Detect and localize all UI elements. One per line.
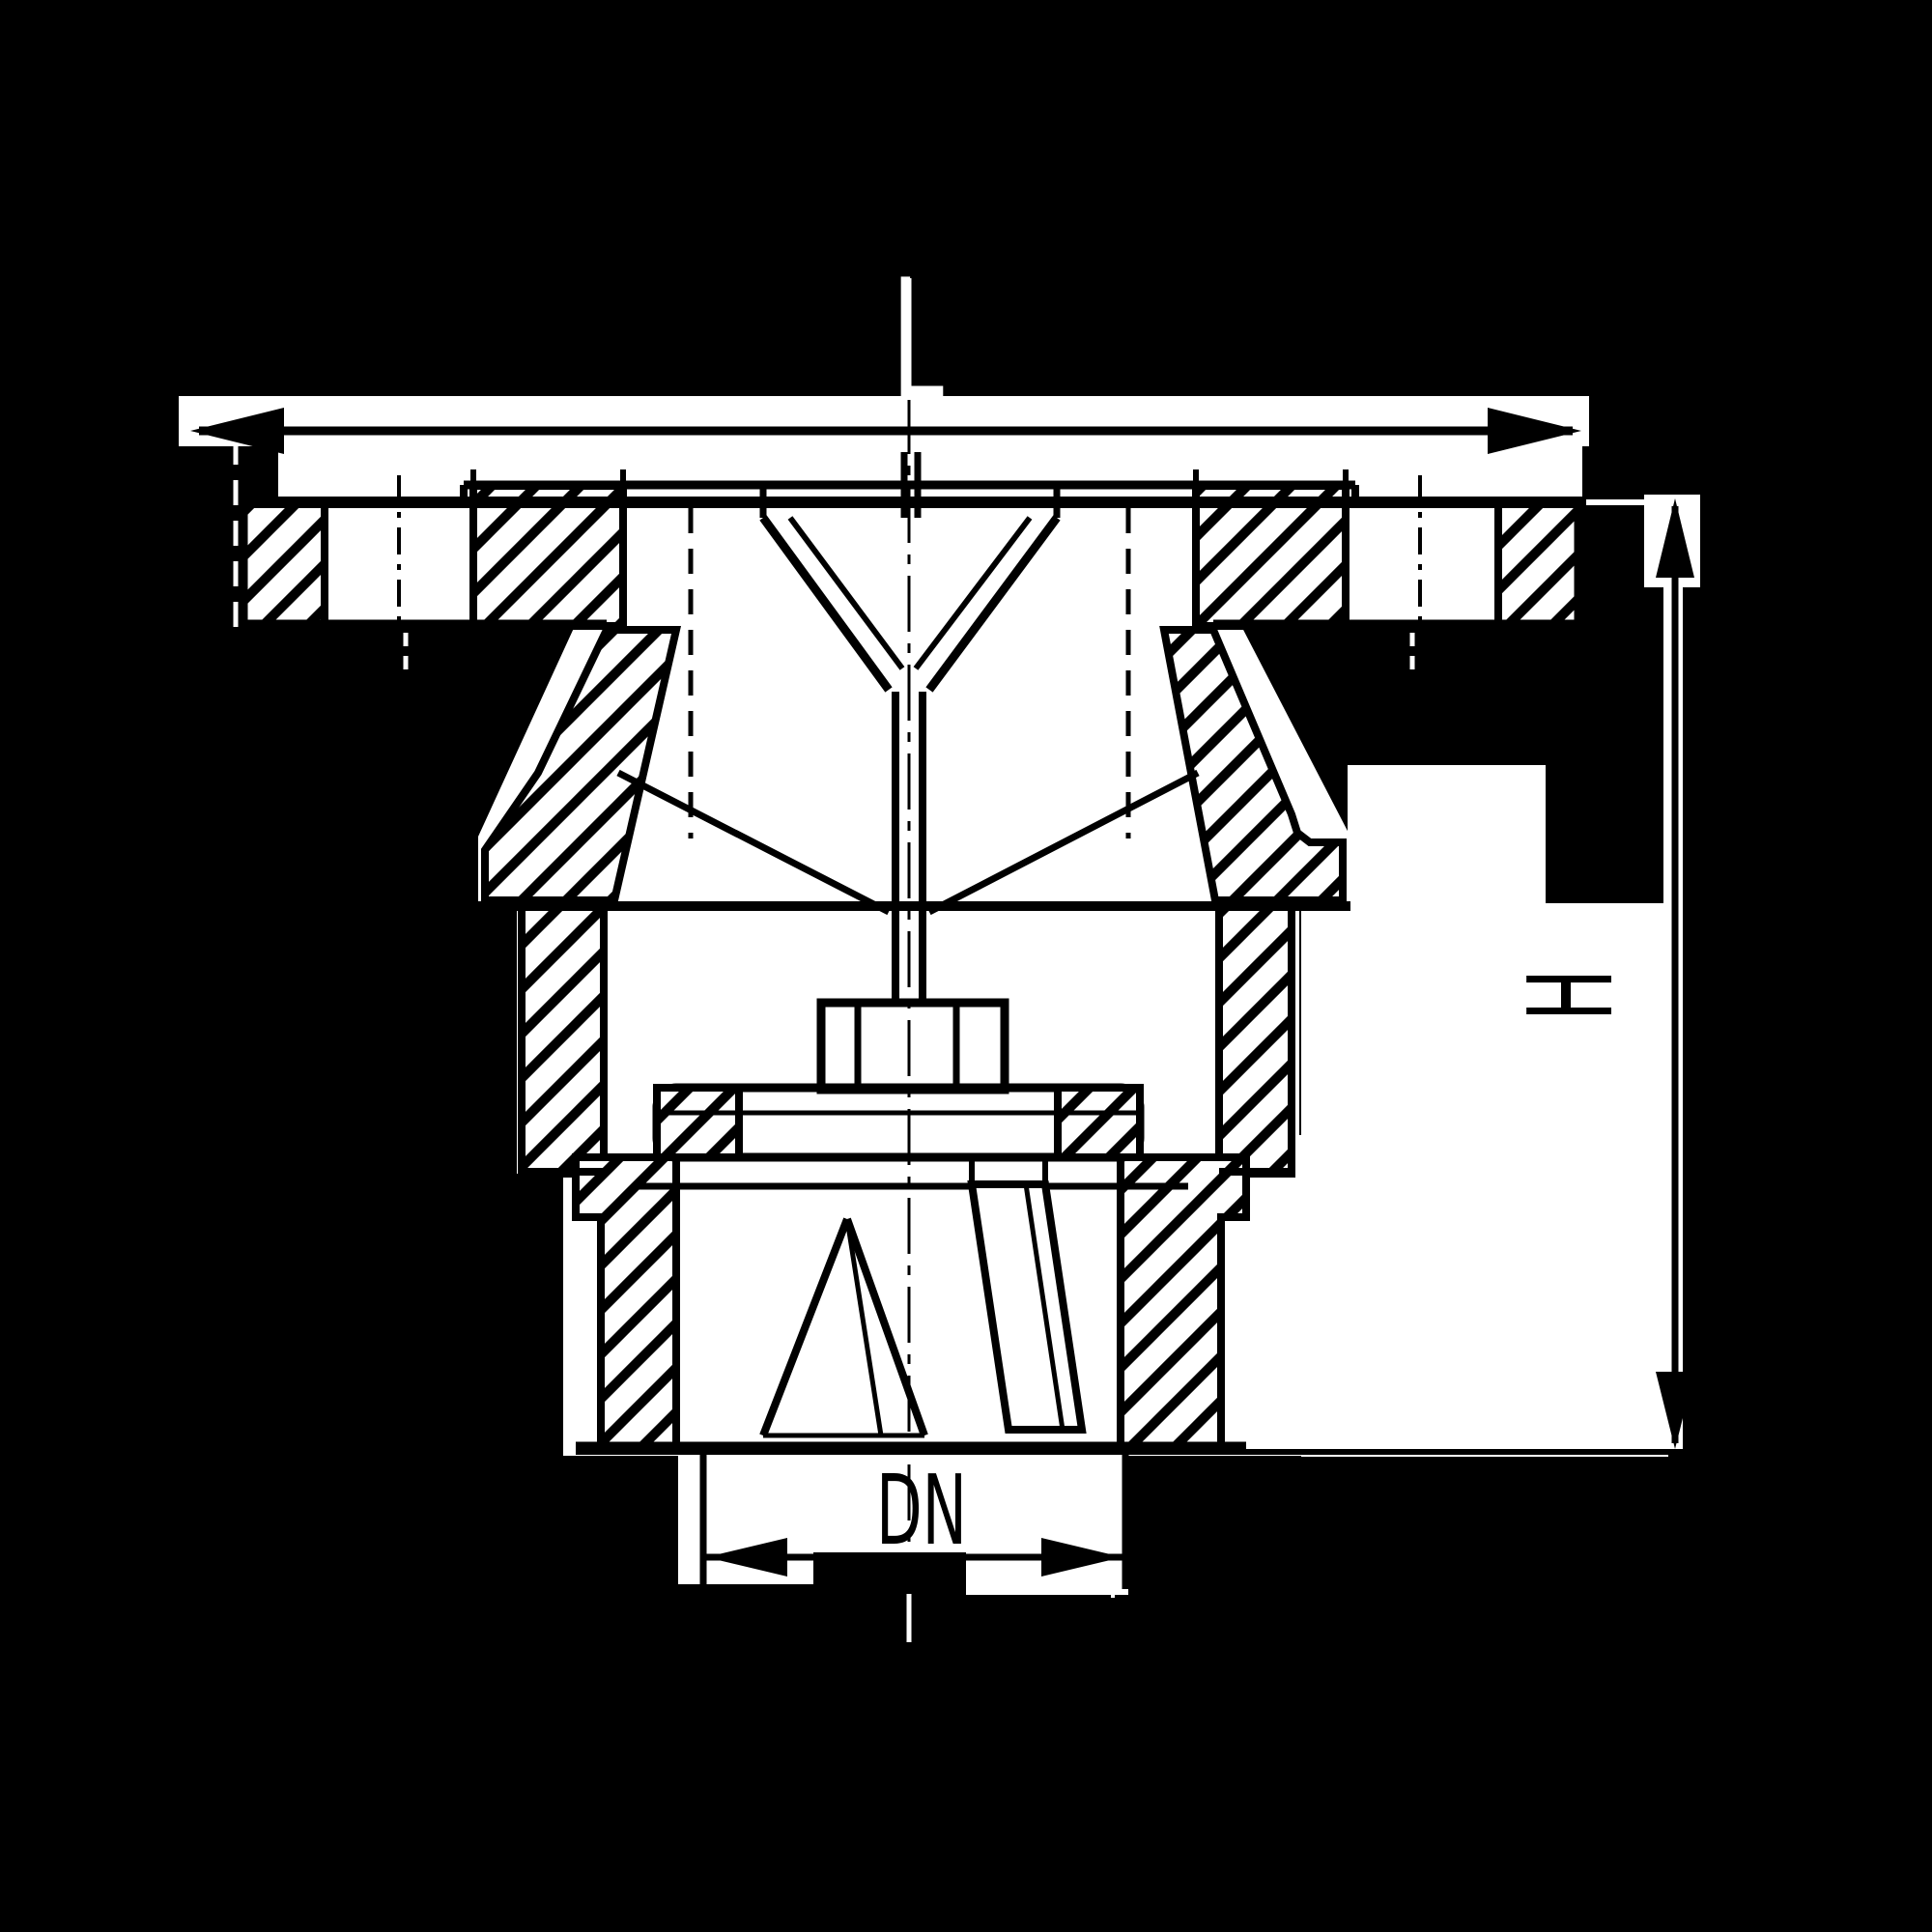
body-wall-right: [1219, 906, 1292, 1174]
flange-section-left-outer: [241, 504, 325, 624]
dim-DN-label: DN: [876, 1454, 967, 1567]
valve-section-drawing: L H DN: [0, 0, 1932, 1932]
technical-drawing-page: L H DN: [0, 0, 1932, 1932]
flange-section-right-outer: [1498, 504, 1580, 624]
seat-plate-cap-left: [657, 1088, 739, 1157]
seat-plate-cap-right: [1058, 1088, 1140, 1157]
dim-H-label: H: [1505, 969, 1639, 1021]
body-wall-left: [522, 906, 604, 1174]
dim-L-label: L: [892, 244, 944, 440]
